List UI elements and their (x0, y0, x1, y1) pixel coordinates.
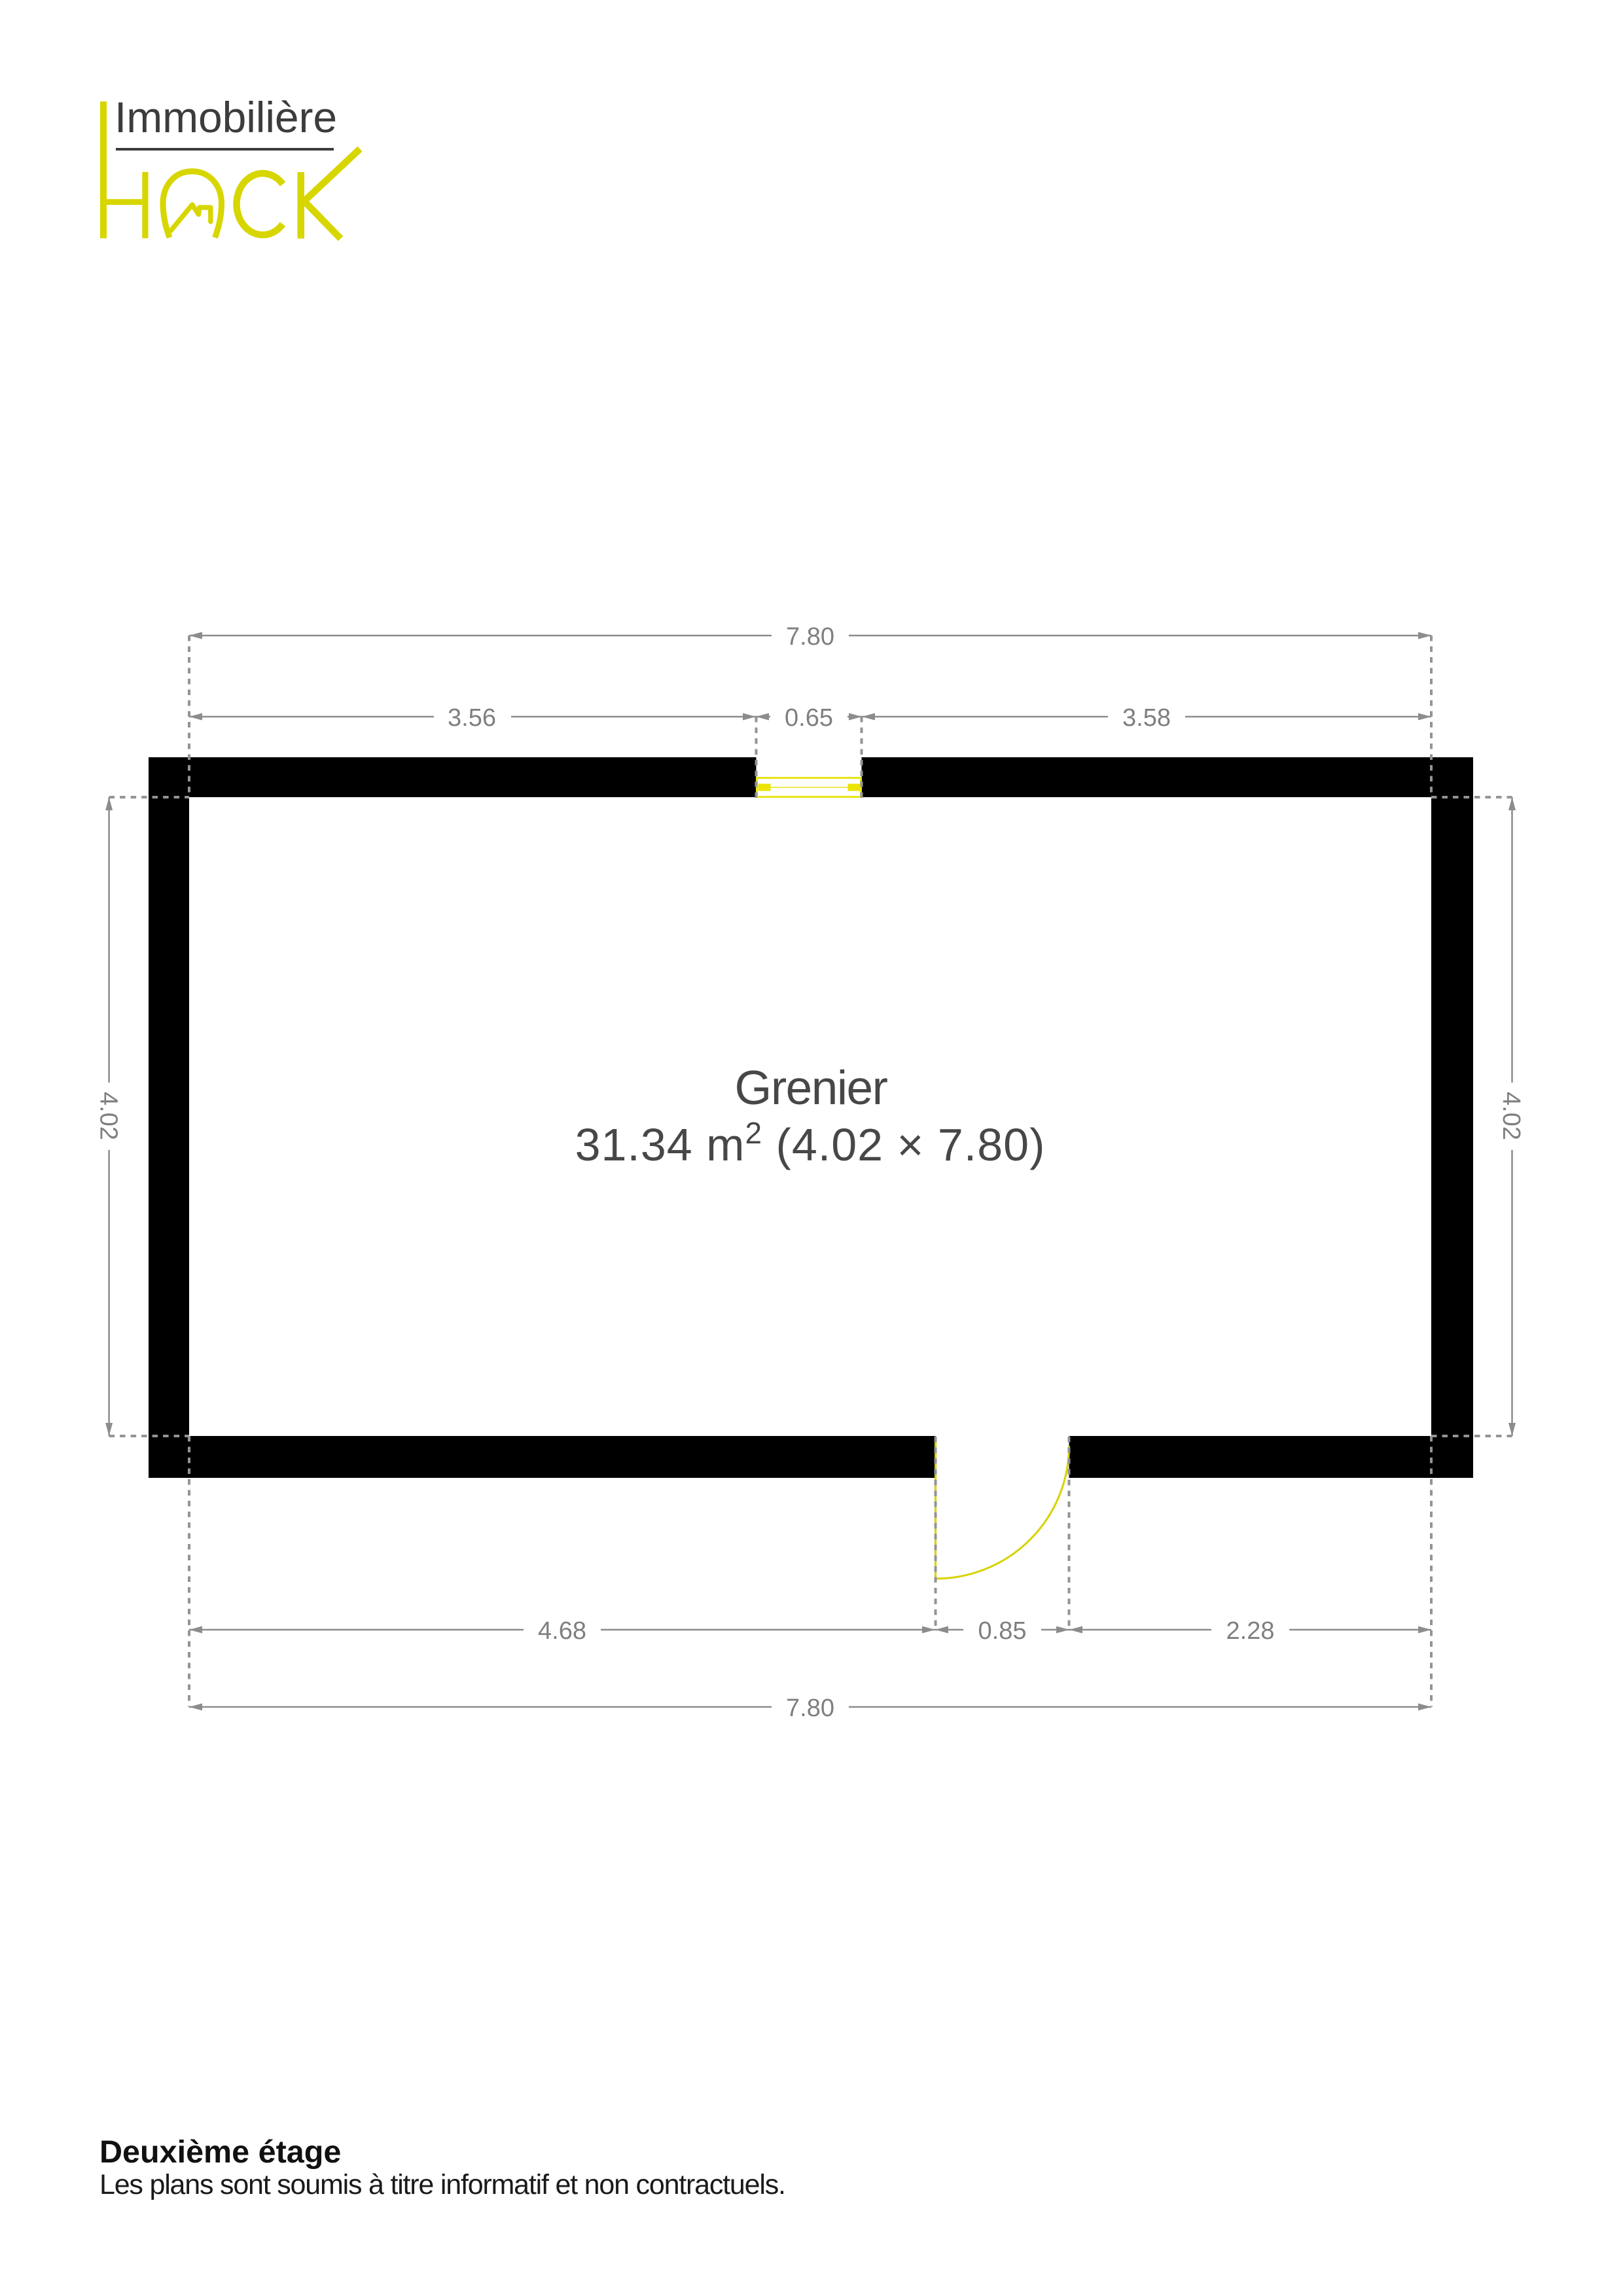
svg-text:7.80: 7.80 (786, 1695, 834, 1722)
svg-text:2.28: 2.28 (1226, 1617, 1275, 1645)
svg-text:Deuxième étage: Deuxième étage (99, 2134, 341, 2170)
svg-text:31.34 m2 (4.02 × 7.80): 31.34 m2 (4.02 × 7.80) (575, 1116, 1046, 1170)
svg-text:7.80: 7.80 (786, 623, 834, 651)
svg-text:0.85: 0.85 (978, 1617, 1027, 1645)
svg-text:3.56: 3.56 (448, 704, 496, 732)
svg-text:4.02: 4.02 (95, 1092, 122, 1140)
svg-text:Immobilière: Immobilière (115, 93, 337, 141)
svg-text:Les plans sont soumis à titre: Les plans sont soumis à titre informatif… (99, 2169, 785, 2200)
svg-text:0.65: 0.65 (785, 704, 833, 732)
svg-text:4.68: 4.68 (538, 1617, 586, 1645)
svg-text:4.02: 4.02 (1497, 1092, 1525, 1140)
svg-text:Grenier: Grenier (735, 1062, 888, 1115)
svg-text:3.58: 3.58 (1122, 704, 1171, 732)
